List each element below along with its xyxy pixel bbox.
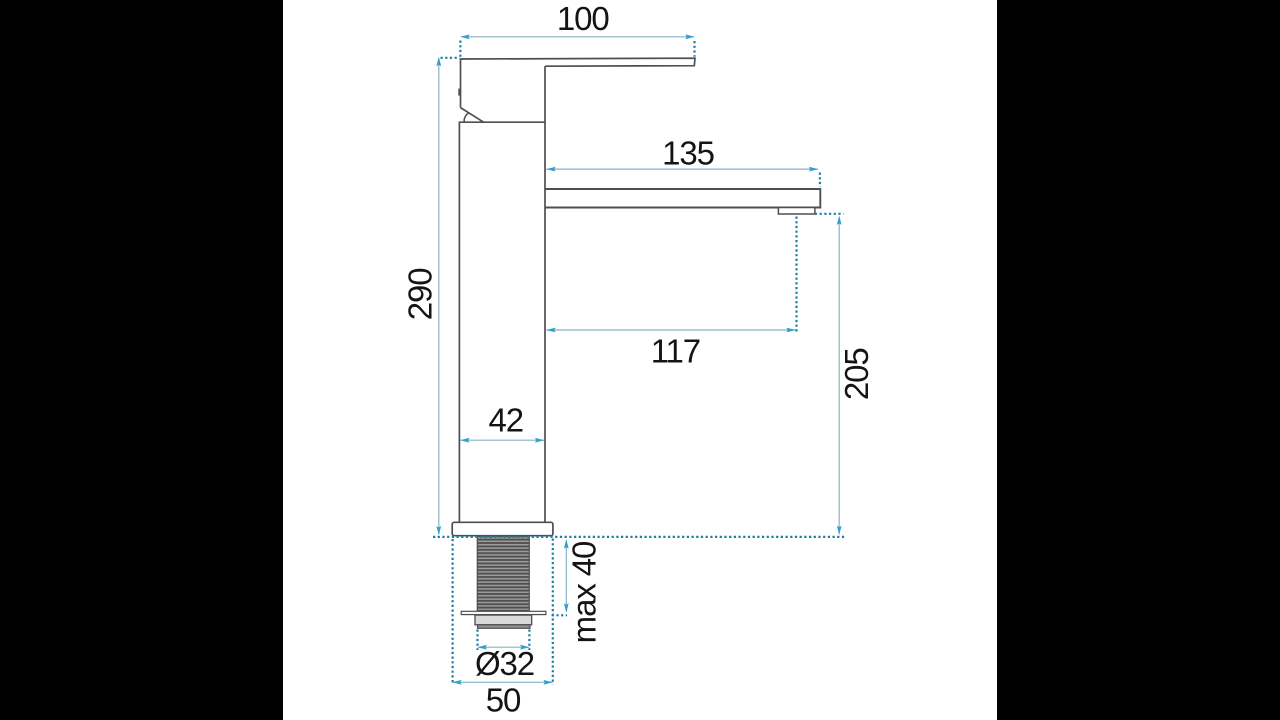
svg-text:205: 205	[838, 348, 875, 400]
svg-text:135: 135	[662, 134, 714, 171]
svg-text:max 40: max 40	[566, 541, 603, 643]
svg-text:42: 42	[489, 401, 524, 438]
svg-text:117: 117	[651, 332, 700, 369]
svg-text:50: 50	[486, 682, 521, 719]
svg-text:Ø32: Ø32	[475, 645, 534, 682]
svg-text:100: 100	[557, 0, 610, 37]
svg-text:290: 290	[401, 268, 438, 321]
